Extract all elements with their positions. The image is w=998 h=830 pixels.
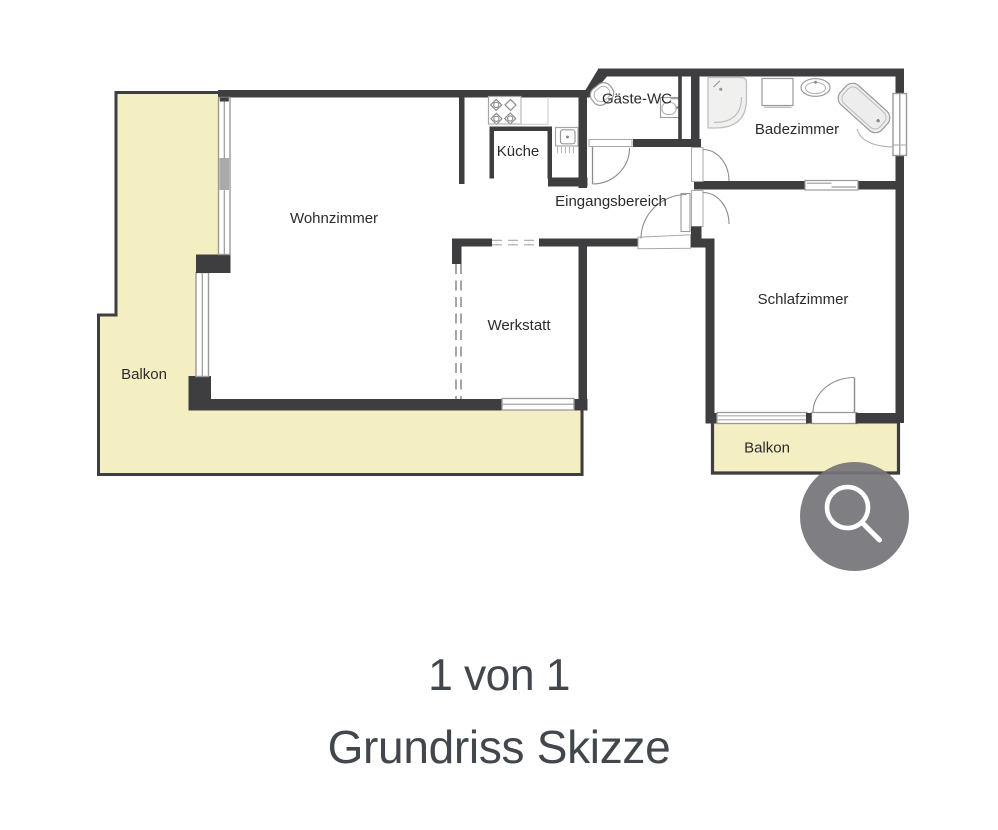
svg-text:Werkstatt: Werkstatt: [487, 317, 551, 334]
svg-text:Badezimmer: Badezimmer: [755, 121, 839, 138]
svg-text:Küche: Küche: [497, 143, 540, 160]
svg-text:Balkon: Balkon: [121, 366, 167, 383]
svg-text:Eingangsbereich: Eingangsbereich: [555, 193, 667, 210]
svg-text:Wohnzimmer: Wohnzimmer: [290, 210, 378, 227]
svg-text:Balkon: Balkon: [744, 440, 790, 457]
svg-text:Gäste-WC: Gäste-WC: [602, 91, 672, 108]
svg-text:Schlafzimmer: Schlafzimmer: [758, 291, 849, 308]
